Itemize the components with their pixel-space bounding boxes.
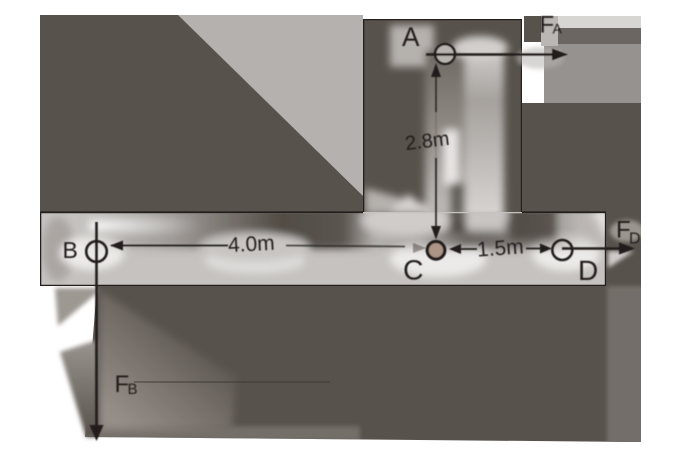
svg-text:B: B	[63, 237, 78, 263]
svg-text:C: C	[403, 255, 424, 286]
svg-text:A: A	[553, 21, 563, 37]
svg-text:D: D	[578, 255, 598, 286]
svg-text:1.5m: 1.5m	[476, 235, 524, 261]
svg-text:B: B	[128, 381, 138, 398]
svg-text:4.0m: 4.0m	[227, 232, 275, 257]
svg-text:D: D	[629, 231, 641, 248]
svg-text:A: A	[402, 22, 420, 52]
